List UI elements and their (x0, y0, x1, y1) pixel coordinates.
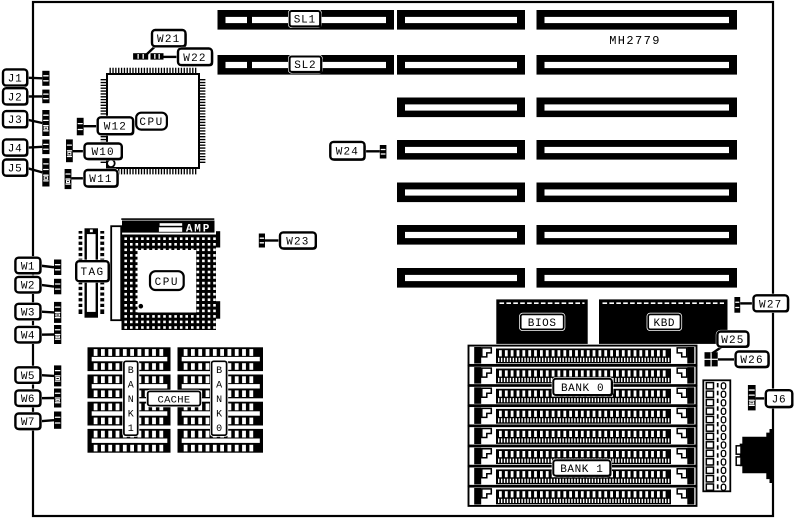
svg-text:W7: W7 (21, 417, 35, 429)
svg-text:W4: W4 (21, 331, 35, 343)
svg-text:N: N (128, 395, 134, 406)
svg-text:SL1: SL1 (294, 15, 316, 27)
svg-text:W1: W1 (21, 261, 35, 273)
svg-text:K: K (216, 410, 222, 421)
svg-text:K: K (128, 410, 134, 421)
svg-text:AMP: AMP (186, 224, 211, 236)
svg-text:W27: W27 (759, 299, 782, 311)
svg-text:W2: W2 (21, 281, 35, 293)
svg-text:MH2779: MH2779 (609, 34, 661, 48)
svg-text:J4: J4 (8, 144, 23, 156)
svg-text:SL2: SL2 (294, 60, 316, 72)
svg-text:W6: W6 (21, 394, 35, 406)
svg-text:BIOS: BIOS (528, 318, 557, 330)
svg-text:J6: J6 (772, 395, 787, 407)
svg-text:W25: W25 (721, 335, 744, 347)
svg-text:W11: W11 (89, 174, 112, 186)
svg-text:J3: J3 (8, 115, 23, 127)
svg-text:TAG: TAG (80, 267, 104, 279)
svg-text:W21: W21 (157, 34, 180, 46)
svg-text:B: B (128, 366, 134, 377)
svg-text:W23: W23 (286, 236, 309, 248)
svg-text:W12: W12 (104, 122, 127, 134)
svg-text:J5: J5 (8, 164, 23, 176)
svg-text:CACHE: CACHE (157, 394, 190, 406)
svg-text:W3: W3 (21, 308, 35, 320)
svg-text:0: 0 (216, 424, 222, 435)
svg-text:N: N (216, 395, 222, 406)
svg-text:W24: W24 (336, 147, 359, 159)
svg-text:B: B (216, 366, 222, 377)
svg-text:1: 1 (128, 424, 134, 435)
svg-text:CPU: CPU (155, 277, 179, 289)
svg-text:BANK 1: BANK 1 (560, 464, 603, 476)
svg-text:J2: J2 (8, 92, 23, 104)
svg-text:W26: W26 (740, 355, 763, 367)
svg-text:J1: J1 (8, 74, 23, 86)
svg-text:W10: W10 (91, 147, 114, 159)
svg-text:A: A (216, 380, 222, 391)
svg-text:A: A (128, 380, 134, 391)
svg-text:CPU: CPU (139, 117, 163, 129)
svg-text:BANK 0: BANK 0 (561, 383, 604, 395)
svg-text:W22: W22 (183, 53, 206, 65)
svg-text:KBD: KBD (654, 318, 676, 330)
svg-text:W5: W5 (21, 371, 35, 383)
